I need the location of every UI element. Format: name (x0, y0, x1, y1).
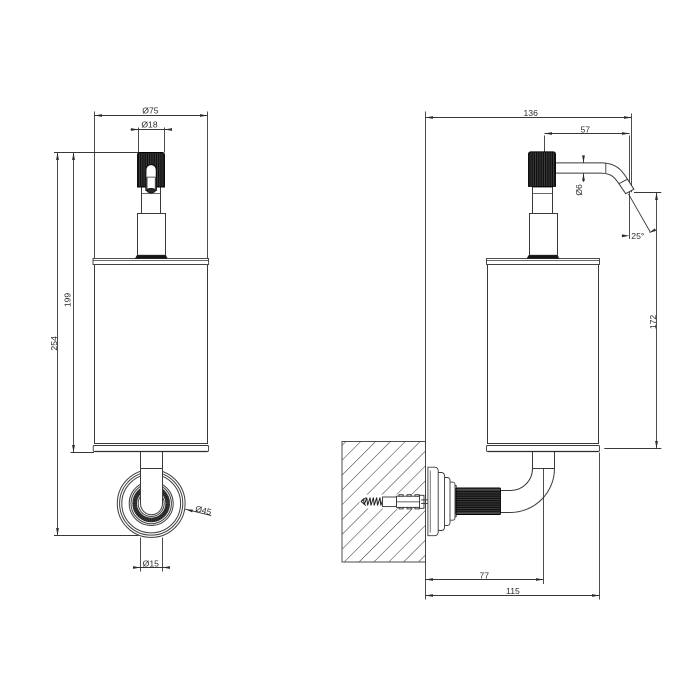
svg-text:Ø75: Ø75 (142, 105, 158, 115)
svg-text:57: 57 (581, 124, 591, 134)
svg-text:115: 115 (506, 586, 520, 596)
svg-text:Ø6: Ø6 (574, 184, 584, 196)
svg-text:Ø18: Ø18 (141, 119, 157, 129)
svg-text:25°: 25° (631, 231, 644, 241)
svg-text:172: 172 (648, 315, 658, 330)
svg-text:77: 77 (480, 571, 490, 581)
svg-text:136: 136 (524, 108, 539, 118)
svg-text:199: 199 (63, 293, 73, 308)
svg-text:Ø15: Ø15 (143, 559, 159, 569)
svg-text:254: 254 (49, 336, 59, 351)
